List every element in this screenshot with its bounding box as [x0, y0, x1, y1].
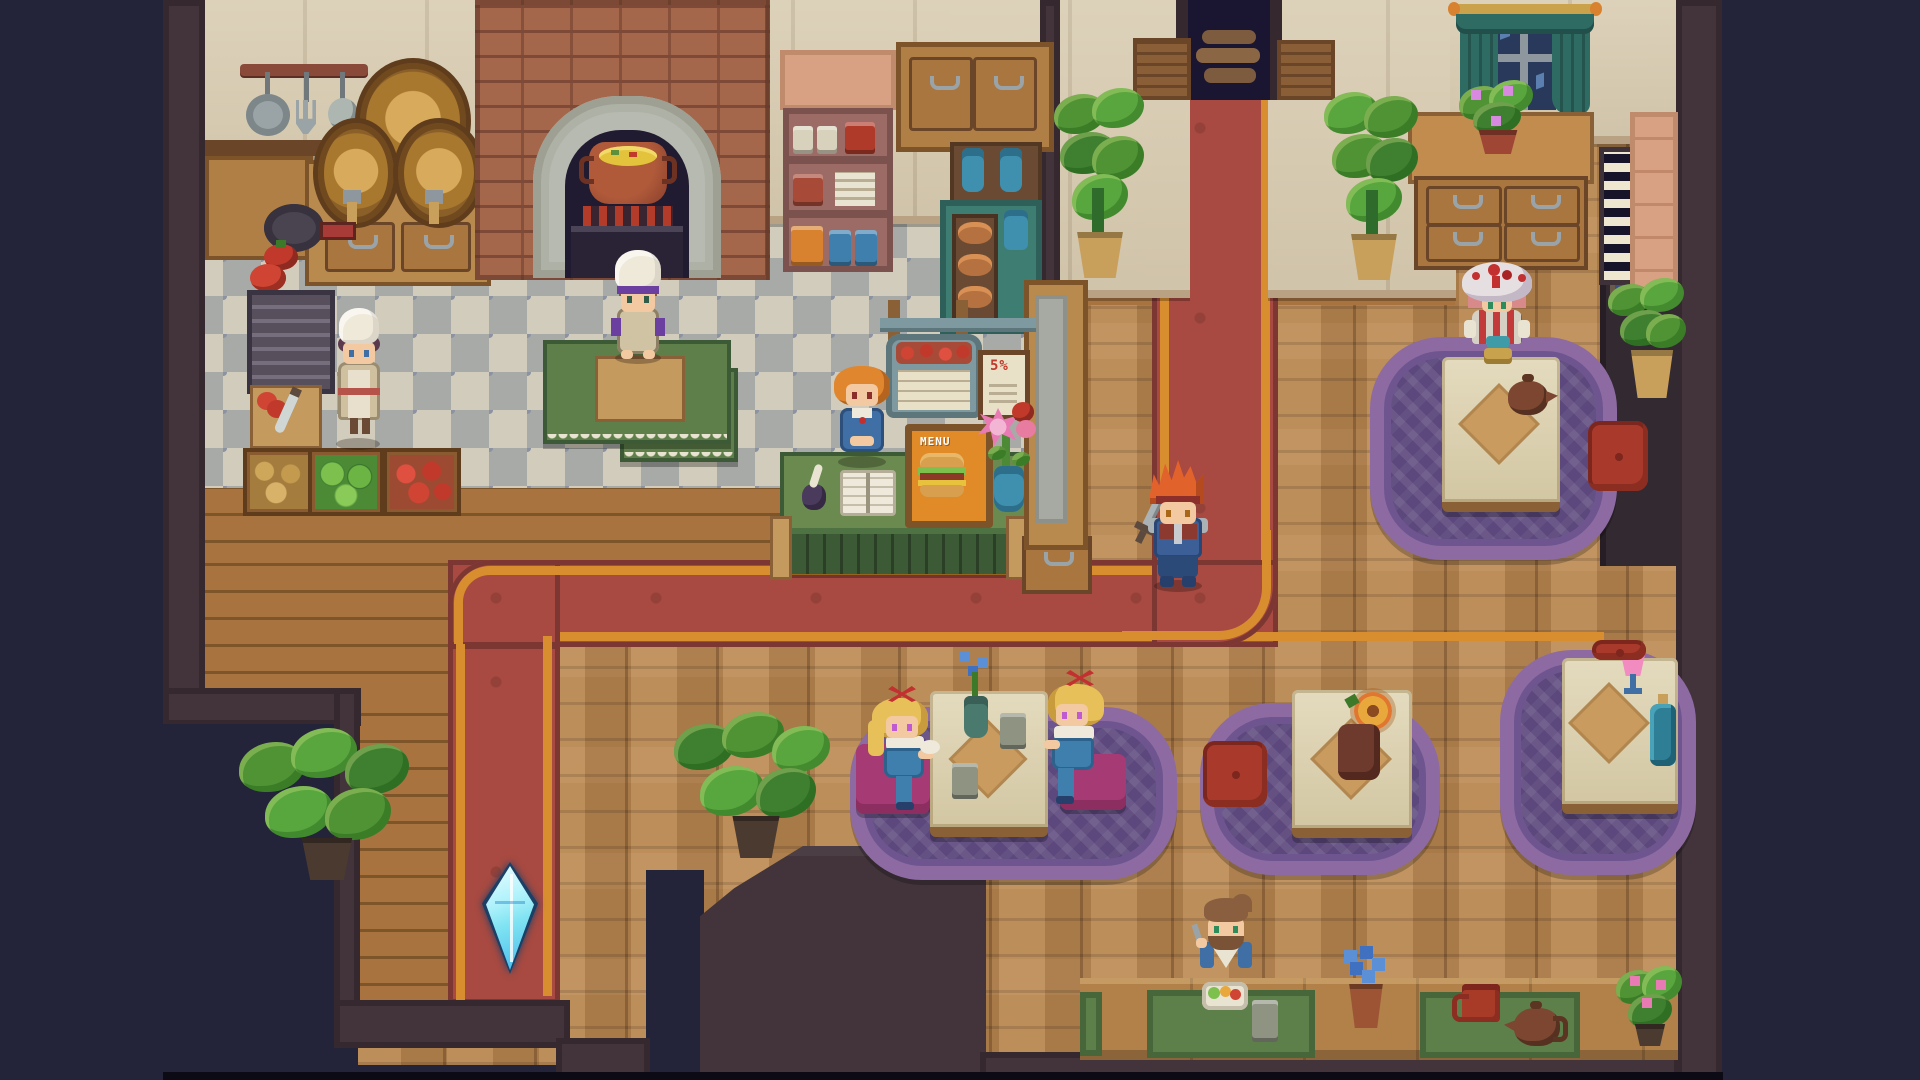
bottom-wall-left: [334, 1000, 570, 1048]
wine-barrel-right: [393, 118, 479, 226]
bottom-left-wall-step: [163, 688, 361, 726]
chef-woman[interactable]: [326, 310, 390, 452]
red-cushion-tea-table[interactable]: [1588, 421, 1648, 491]
stone-step: [1202, 30, 1256, 44]
twin-mug-2: [952, 763, 978, 799]
corridor-baseboard-right: [1268, 290, 1456, 298]
outside-pocket: [646, 870, 704, 1080]
counter-flower-vase: [978, 400, 1038, 516]
bar-blue-flowers: [1336, 948, 1392, 1038]
twin-mug-1: [1000, 713, 1026, 749]
cabbage-crate: [308, 448, 384, 516]
potato-crate: [243, 448, 315, 516]
red-cushion-flower-table[interactable]: [1203, 741, 1267, 807]
doorway-plant-right: [1318, 88, 1422, 288]
carpet-corner-plant: [672, 712, 838, 868]
copper-cauldron: [589, 142, 667, 204]
bar-teapot: [1514, 1008, 1560, 1046]
guest-book[interactable]: [840, 470, 896, 516]
twins-vase: [950, 652, 1002, 744]
burger-art: [920, 453, 964, 499]
tea-table-side-plant: [1604, 276, 1688, 402]
game-viewport: 5% MENU: [0, 0, 1920, 1080]
player-knight[interactable]: [1140, 460, 1216, 594]
doorway-plant-left: [1052, 88, 1148, 288]
metal-grate: [247, 290, 335, 394]
tomato-crate: [383, 448, 461, 516]
oven-grill: [583, 206, 673, 226]
bottom-black-edge: [163, 1072, 1723, 1080]
mauve-dish-shelf: [783, 108, 893, 272]
menu-board-text: MENU: [920, 436, 951, 447]
save-crystal[interactable]: [482, 862, 538, 974]
rose-pink: [1016, 420, 1036, 438]
north-doorway[interactable]: [1188, 0, 1270, 100]
tomatoes: [250, 244, 302, 294]
red-rose: [1012, 402, 1034, 422]
hanging-bottles-rack: [950, 142, 1042, 204]
counter-base: [775, 528, 1023, 574]
brick-oven[interactable]: [475, 0, 770, 280]
salmon-panel: [780, 50, 896, 110]
flower-table-vase: [1328, 690, 1392, 790]
hanging-menu-sign[interactable]: [886, 334, 982, 418]
ink-quill: [800, 468, 828, 512]
bearded-diner[interactable]: [1190, 898, 1262, 998]
left-outer-wall: [163, 0, 205, 724]
blue-vase: [994, 466, 1024, 512]
brown-teapot: [1508, 381, 1548, 415]
curtain-pelmet: [1456, 14, 1594, 34]
flower-hat: [1462, 262, 1532, 302]
piano-keys-decor: [1604, 152, 1632, 280]
bottom-left-plant: [235, 728, 421, 886]
red-carpet-corner-left: [448, 560, 560, 647]
hanging-pan-icon: [246, 76, 290, 136]
desk-flower-pot: [1455, 76, 1539, 156]
tea-table: [1442, 357, 1560, 512]
sign-crossbar: [880, 318, 1036, 332]
plate-small: [920, 740, 940, 754]
diner-mug: [1252, 1000, 1278, 1042]
plank-floor-left: [185, 558, 457, 698]
red-mug: [1452, 984, 1500, 1022]
stone-step: [1204, 68, 1256, 83]
discount-text: 5%: [990, 359, 1009, 373]
right-outer-wall: [1676, 0, 1722, 1080]
red-cushion-drinks-table[interactable]: [1592, 640, 1646, 660]
stone-step: [1196, 48, 1260, 63]
chef-man[interactable]: [605, 248, 671, 368]
blue-bottle: [1650, 694, 1676, 770]
lady-red-hat[interactable]: [1456, 264, 1538, 378]
cutting-board: [250, 385, 322, 449]
pink-wood-panel: [1630, 112, 1678, 302]
oak-cabinet: [896, 42, 1054, 152]
twin-girl-right[interactable]: [1036, 674, 1116, 808]
counter-post-left: [770, 516, 792, 580]
green-mat-left: [1080, 992, 1102, 1056]
soup: [599, 146, 657, 166]
twin-girl-left[interactable]: [862, 692, 946, 814]
hostess[interactable]: [826, 362, 898, 468]
bottom-right-flower-bush: [1616, 966, 1684, 1050]
